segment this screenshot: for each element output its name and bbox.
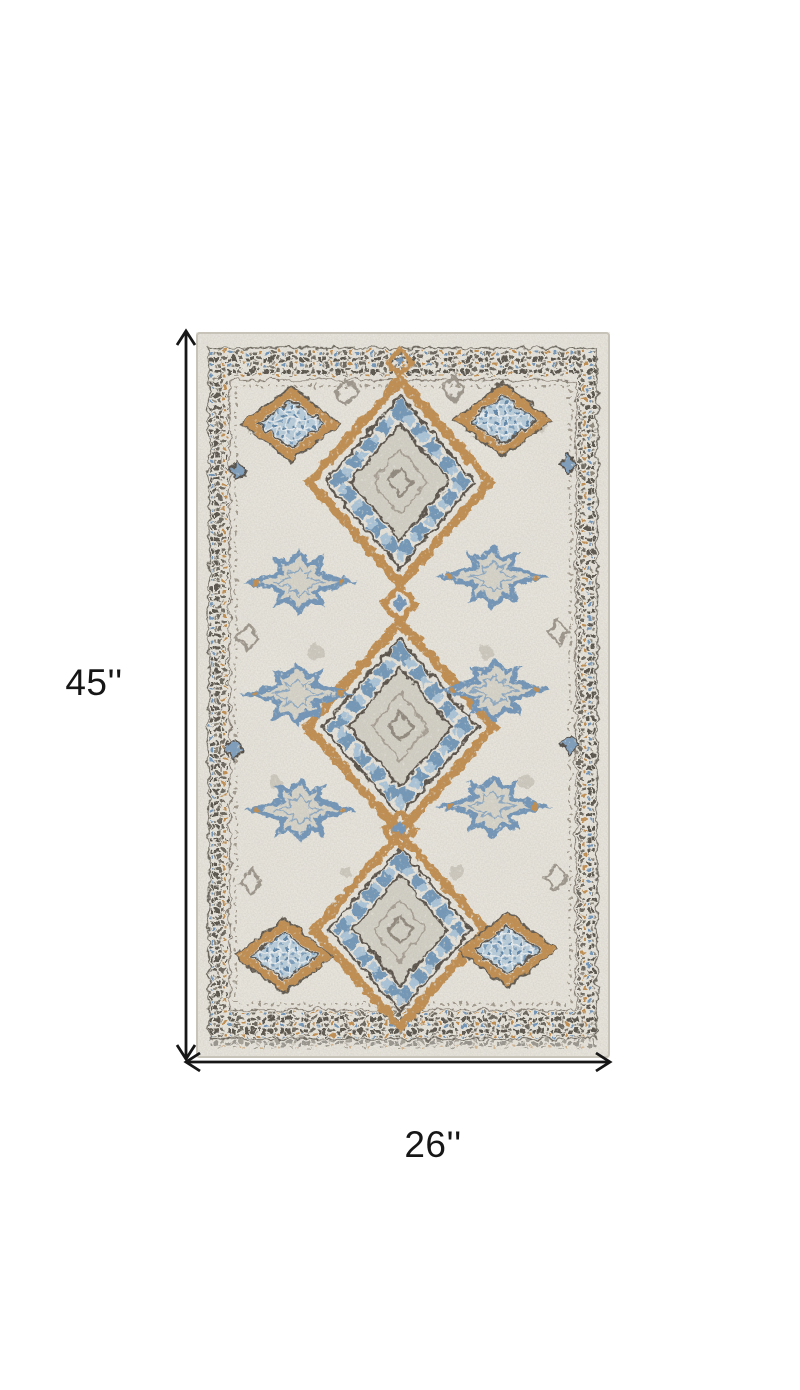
page: { "diagram": { "type": "product-dimensio… (0, 0, 800, 1390)
width-dimension-arrow (180, 1048, 616, 1076)
rug-image (196, 332, 610, 1058)
width-dimension-label: 26'' (393, 1126, 473, 1163)
height-dimension-arrow (172, 324, 200, 1066)
height-dimension-label: 45'' (54, 664, 134, 701)
